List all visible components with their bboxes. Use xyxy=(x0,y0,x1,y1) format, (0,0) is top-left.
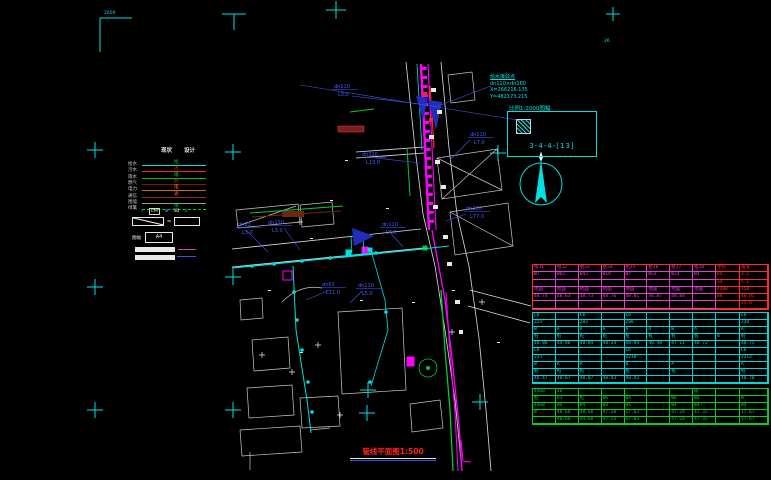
legend-line-swatch xyxy=(142,197,206,198)
legend-line-tag: 通 xyxy=(174,191,179,197)
pipe-size-label: dn63 xyxy=(238,222,251,228)
table-cell: A xyxy=(556,362,579,369)
table-cell xyxy=(740,389,768,396)
legend-slope-row: = xyxy=(132,217,200,226)
pipe-size-label: dn110 xyxy=(382,222,398,228)
table-cell: 地面 xyxy=(602,287,625,294)
table-cell: W4 xyxy=(625,403,648,410)
legend-line-tag: 污 xyxy=(174,165,179,171)
legend-row-label: 污水 xyxy=(128,167,137,173)
legend-row-label: 通信 xyxy=(128,193,137,199)
table-cell: A xyxy=(602,327,625,334)
drawing-title-block: 管线平面图1:500 xyxy=(350,446,436,461)
table-cell xyxy=(602,355,625,362)
table-cell xyxy=(647,410,670,417)
table-cell: W4 xyxy=(693,272,716,279)
table-cell: 桩 xyxy=(556,369,579,376)
table-cell: 48.48 xyxy=(647,341,670,348)
legend-line-tag: 雨 xyxy=(174,172,179,178)
table-cell: 48.07 xyxy=(579,376,602,383)
table-cell: 47.11 xyxy=(670,341,693,348)
pipeline-data-table: 给J1给J2给J3给J4给J5给J6给J7给J8坐标角度W7W65W42W19W… xyxy=(532,264,769,427)
table-cell: 坐标 xyxy=(716,265,740,272)
table-cell: Lb xyxy=(740,313,768,320)
table-cell: W4 xyxy=(556,403,579,410)
table-cell xyxy=(716,396,740,403)
scale-label: 图幅 xyxy=(132,235,141,241)
table-cell xyxy=(647,389,670,396)
road-lines xyxy=(232,62,531,471)
table-cell: Lb xyxy=(625,348,648,355)
table-cell: 48.05 xyxy=(740,294,768,301)
legend-bar-1 xyxy=(135,247,175,252)
table-cell xyxy=(647,348,670,355)
table-cell xyxy=(579,301,602,308)
table-cell: 碰 xyxy=(693,389,716,396)
connection-x: X=266216.135 xyxy=(490,87,528,94)
table-cell xyxy=(579,389,602,396)
pipe-size-label: dn110 xyxy=(470,132,486,138)
table-cell: A xyxy=(693,327,716,334)
table-cell xyxy=(647,376,670,383)
table-cell: W4 xyxy=(740,403,768,410)
table-cell: 88 xyxy=(716,294,740,301)
table-cell: A xyxy=(647,327,670,334)
table-cell xyxy=(716,369,740,376)
pipe-size-label: dn110 xyxy=(362,152,378,158)
table-cell: 225 xyxy=(533,320,556,327)
table-cell: 84 xyxy=(716,272,740,279)
legend-bar-2 xyxy=(135,255,175,260)
legend-row-label: 雨水 xyxy=(128,174,137,180)
table-cell: W6 xyxy=(602,396,625,403)
table-cell: 48.81 xyxy=(625,294,648,301)
table-cell: 地面 xyxy=(625,287,648,294)
table-cell: W65 xyxy=(556,272,579,279)
table-cell: W4 xyxy=(625,396,648,403)
table-cell: 48.73 xyxy=(579,294,602,301)
pipe-length-label: L3.0 xyxy=(272,228,283,234)
table-cell: 158 xyxy=(740,287,768,294)
table-cell: 48.74 xyxy=(533,294,556,301)
table-cell: 48.34 xyxy=(602,341,625,348)
table-cell: 给J1 xyxy=(533,265,556,272)
table-cell xyxy=(693,376,716,383)
table-cell: 47.24 xyxy=(670,410,693,417)
table-cell: 桩 xyxy=(625,334,648,341)
table-cell xyxy=(716,403,740,410)
table-cell: 4468 xyxy=(533,403,556,410)
table-cell xyxy=(693,301,716,308)
table-cell: W4 xyxy=(693,396,716,403)
table-cell: 3.1 xyxy=(740,272,768,279)
table-cell: A xyxy=(556,327,579,334)
table-cell: W xyxy=(670,327,693,334)
table-cell: 5.1 xyxy=(740,280,768,287)
table-cell xyxy=(716,410,740,417)
cad-canvas: 2600 26 dn110L3.0dn110L13.0dn63L3.0dn110… xyxy=(0,0,771,480)
table-cell xyxy=(670,301,693,308)
sheet-index-box: 比例1:2000图幅 3-4-4-[13] xyxy=(507,111,597,157)
table-cell xyxy=(693,280,716,287)
table-cell: W xyxy=(625,362,648,369)
leader-lines xyxy=(246,85,530,303)
pipe-red xyxy=(252,86,434,217)
legend-line-tag: 燃 xyxy=(174,178,179,184)
legend-row-label: 围墙 xyxy=(128,199,137,205)
table-cell xyxy=(533,301,556,308)
table-cell: 地面 xyxy=(647,287,670,294)
table-cell xyxy=(647,362,670,369)
table-cell: 桩 xyxy=(533,369,556,376)
table-cell xyxy=(602,348,625,355)
legend-row-label: 电力 xyxy=(128,186,137,192)
table-cell: m xyxy=(716,334,740,341)
table-cell: 17.63 xyxy=(625,410,648,417)
table-cell xyxy=(647,369,670,376)
table-cell: 48.66 xyxy=(556,410,579,417)
table-cell: 给J8 xyxy=(693,265,716,272)
table-cell: 225 xyxy=(533,355,556,362)
table-cell: A xyxy=(579,327,602,334)
table-cell: Lb xyxy=(740,348,768,355)
table-cell xyxy=(647,280,670,287)
table-cell xyxy=(556,280,579,287)
table-cell: 48.68 xyxy=(579,410,602,417)
table-cell: 44.68 xyxy=(579,417,602,424)
table-cell xyxy=(602,369,625,376)
table-cell xyxy=(602,389,625,396)
table-cell xyxy=(579,280,602,287)
table-cell: 17.63 xyxy=(625,417,648,424)
connection-note: 给水接驳点 dn110×dn160 X=266216.135 Y=482173.… xyxy=(490,74,528,100)
table-cell xyxy=(625,280,648,287)
legend-row-label: 燃气 xyxy=(128,180,137,186)
table-cell xyxy=(556,313,579,320)
table-cell xyxy=(556,348,579,355)
table-cell: 47.38 xyxy=(602,410,625,417)
table-cell: A xyxy=(625,327,648,334)
table-cell: 桩 xyxy=(647,334,670,341)
table-cell xyxy=(670,313,693,320)
table-cell: 48 xyxy=(556,389,579,396)
table-cell xyxy=(716,301,740,308)
table-cell xyxy=(693,294,716,301)
table-cell: W4 xyxy=(579,403,602,410)
table-cell xyxy=(647,301,670,308)
table-cell xyxy=(647,320,670,327)
table-cell xyxy=(625,301,648,308)
table-cell xyxy=(693,313,716,320)
table-cell xyxy=(716,320,740,327)
legend-line-blue xyxy=(177,256,196,257)
table-cell: 48.84 xyxy=(670,294,693,301)
table-cell: 283 xyxy=(579,320,602,327)
legend-line-magenta xyxy=(178,249,196,250)
table-cell: A xyxy=(579,362,602,369)
table-cell: 地面 xyxy=(579,287,602,294)
pipe-length-label: L7.0 xyxy=(474,140,485,146)
table-cell: 地面 xyxy=(556,287,579,294)
table-cell xyxy=(716,376,740,383)
table-cell: W4 xyxy=(670,403,693,410)
table-cell: Lb xyxy=(579,313,602,320)
table-cell: W4 xyxy=(602,403,625,410)
table-cell: W19 xyxy=(602,272,625,279)
legend-symbol: ≈ xyxy=(140,209,144,214)
table-cell xyxy=(716,355,740,362)
table-cell: 48.63 xyxy=(556,294,579,301)
table-cell: 48.78 xyxy=(740,376,768,383)
table-cell xyxy=(716,348,740,355)
table-cell xyxy=(670,348,693,355)
pipe-length-label: L11.0 xyxy=(326,290,340,296)
table-cell: W xyxy=(740,396,768,403)
table-cell xyxy=(579,348,602,355)
legend-header-2: 设计 xyxy=(184,146,195,154)
table-cell xyxy=(670,389,693,396)
table-cell: 15.8 xyxy=(740,301,768,308)
table-cell: Lb xyxy=(533,348,556,355)
corner-text-tl: 2600 xyxy=(104,10,116,16)
table-cell: 地面 xyxy=(533,287,556,294)
table-cell: 17.67 xyxy=(740,410,768,417)
table-cell: 给J4 xyxy=(602,265,625,272)
table-cell xyxy=(556,355,579,362)
table-cell: 34 xyxy=(716,280,740,287)
table-cell xyxy=(716,389,740,396)
table-cell: 桩 xyxy=(556,334,579,341)
hatch-swatch-icon xyxy=(516,119,531,134)
pipe-size-label: dn110 xyxy=(358,283,374,289)
table-cell: 给J5 xyxy=(625,265,648,272)
pipe-length-label: L13.0 xyxy=(366,160,380,166)
drawing-title: 管线平面图1:500 xyxy=(350,446,436,457)
table-cell: 48.86 xyxy=(533,341,556,348)
table-cell xyxy=(693,362,716,369)
table-cell: 48.43 xyxy=(625,376,648,383)
table-cell xyxy=(647,417,670,424)
table-cell: 17.67 xyxy=(740,417,768,424)
table-cell: 桩 xyxy=(533,396,556,403)
table-cell xyxy=(647,403,670,410)
table-cell xyxy=(533,280,556,287)
sheet-box-caption: 比例1:2000图幅 xyxy=(509,104,550,112)
pipe-green xyxy=(250,109,453,471)
north-arrow-icon xyxy=(520,152,562,205)
table-cell xyxy=(533,417,556,424)
table-cell: W24 xyxy=(670,272,693,279)
pipe-magenta xyxy=(283,64,471,471)
table-cell: 给J7 xyxy=(670,265,693,272)
table-cell: W xyxy=(533,362,556,369)
sheet-code: 3-4-4-[13] xyxy=(508,142,596,150)
table-cell xyxy=(602,280,625,287)
table-cell xyxy=(670,320,693,327)
table-cell xyxy=(670,280,693,287)
legend-row-label: 绿篱 xyxy=(128,205,137,211)
table-cell xyxy=(670,376,693,383)
table-cell: A xyxy=(740,327,768,334)
table-cell: 288 xyxy=(625,320,648,327)
table-cell xyxy=(602,362,625,369)
pipe-length-label: L3.0 xyxy=(242,230,253,236)
table-cell: 46.66 xyxy=(556,417,579,424)
table-cell: 48.76 xyxy=(602,294,625,301)
table-cell: 47.24 xyxy=(670,417,693,424)
table-cell: 48.72 xyxy=(693,341,716,348)
table-cell: 48.43 xyxy=(602,376,625,383)
table-cell: W53 xyxy=(647,272,670,279)
table-cell xyxy=(602,320,625,327)
table-cell xyxy=(579,355,602,362)
table-cell: 47.32 xyxy=(693,417,716,424)
table-cell: 桩 xyxy=(579,369,602,376)
pipe-size-label: dn110 xyxy=(268,220,284,226)
title-underline-blue xyxy=(350,460,436,461)
title-underline-white xyxy=(350,458,436,459)
table-cell: W7 xyxy=(533,272,556,279)
pipe-size-label: dn110 xyxy=(334,84,350,90)
table-cell: W6 xyxy=(670,396,693,403)
legend-line-tag: 给 xyxy=(174,159,179,165)
table-cell: 给J3 xyxy=(579,265,602,272)
table-cell: W47 xyxy=(693,403,716,410)
connection-y: Y=482173.215 xyxy=(490,94,528,101)
table-cell xyxy=(556,320,579,327)
table-cell: A xyxy=(740,362,768,369)
table-section-2: LbLbLbLb225283288220WAAAAAWAA桩桩桩桩桩桩桩桩m桩4… xyxy=(532,312,769,384)
table-cell: Lb xyxy=(533,313,556,320)
legend-symbol: 3B xyxy=(173,209,179,214)
table-cell: 桩 xyxy=(579,396,602,403)
table-cell: Lb xyxy=(625,313,648,320)
table-cell xyxy=(625,389,648,396)
legend-symbol: ∠ xyxy=(184,209,188,214)
slope-eq: = xyxy=(167,219,171,225)
table-cell: 角度 xyxy=(740,265,768,272)
table-cell: 桩 xyxy=(670,334,693,341)
table-cell: 桩 xyxy=(693,334,716,341)
legend-symbol: CM xyxy=(149,208,160,215)
legend-scale-row: 图幅 A4 xyxy=(132,232,173,243)
table-cell: 47.24 xyxy=(602,417,625,424)
table-cell: A xyxy=(670,362,693,369)
table-cell xyxy=(693,355,716,362)
table-cell xyxy=(647,313,670,320)
legend-panel: 现状 设计 给水给污水污雨水雨燃气燃电力电通信通围墙绿篱绿 ≈CM◆3B∠ = … xyxy=(128,146,212,264)
table-cell: W xyxy=(533,327,556,334)
table-section-1: 给J1给J2给J3给J4给J5给J6给J7给J8坐标角度W7W65W42W19W… xyxy=(532,264,769,310)
table-cell: 48.84 xyxy=(579,341,602,348)
table-cell: D3 xyxy=(556,396,579,403)
table-cell xyxy=(693,369,716,376)
table-cell: 桩 xyxy=(602,334,625,341)
table-cell xyxy=(556,301,579,308)
table-cell: 48.47 xyxy=(533,376,556,383)
table-cell: 4488 xyxy=(716,287,740,294)
table-cell xyxy=(716,327,740,334)
slope-symbol-icon xyxy=(132,217,164,226)
table-cell: 44.86 xyxy=(556,341,579,348)
table-cell: 桩 xyxy=(625,369,648,376)
table-cell xyxy=(647,355,670,362)
table-cell: 2210 xyxy=(625,355,648,362)
table-cell: 47.32 xyxy=(693,410,716,417)
table-cell xyxy=(602,301,625,308)
slope-box-icon xyxy=(174,217,200,226)
table-cell: W42 xyxy=(579,272,602,279)
corner-text-tr: 26 xyxy=(604,38,610,44)
table-cell: W xyxy=(533,410,556,417)
table-cell xyxy=(716,313,740,320)
pipe-length-label: L4.0 xyxy=(386,230,397,236)
table-cell: 44.87 xyxy=(647,294,670,301)
table-cell xyxy=(602,313,625,320)
table-cell: 桩 xyxy=(579,334,602,341)
table-cell xyxy=(716,417,740,424)
legend-row-label: 给水 xyxy=(128,161,137,167)
table-section-3: 446848碰桩D3桩W6W4W6W4W4468W4W4W4W4W4W47W4W… xyxy=(532,388,769,425)
legend-header-1: 现状 xyxy=(161,146,172,154)
pipe-length-label: L5.0 xyxy=(362,291,373,297)
scale-value-box: A4 xyxy=(145,232,173,243)
table-cell: 48.94 xyxy=(625,341,648,348)
table-cell: 给J6 xyxy=(647,265,670,272)
table-cell: 2212 xyxy=(740,355,768,362)
table-cell xyxy=(647,396,670,403)
table-cell xyxy=(693,348,716,355)
pipe-length-label: L3.0 xyxy=(338,92,349,98)
table-cell xyxy=(716,362,740,369)
table-cell: 桩 xyxy=(740,369,768,376)
table-cell: 4468 xyxy=(533,389,556,396)
table-cell: 桩 xyxy=(740,334,768,341)
table-cell: W7 xyxy=(625,272,648,279)
table-cell xyxy=(716,341,740,348)
table-cell: 地面 xyxy=(670,287,693,294)
legend-symbol: ◆ xyxy=(165,209,168,214)
table-cell xyxy=(693,320,716,327)
table-cell: 给J2 xyxy=(556,265,579,272)
table-cell: 48.75 xyxy=(740,341,768,348)
table-cell: 地面 xyxy=(693,287,716,294)
table-cell xyxy=(670,355,693,362)
table-cell: 桩 xyxy=(533,334,556,341)
table-cell: 48.67 xyxy=(556,376,579,383)
table-cell: 220 xyxy=(740,320,768,327)
legend-symbol-row: ≈CM◆3B∠ xyxy=(140,208,188,215)
pipe-size-label: dn63 xyxy=(322,282,335,288)
pipe-size-label: dn110 xyxy=(466,206,482,212)
legend-line-tag: 电 xyxy=(174,184,179,190)
table-cell: 桩 xyxy=(670,369,693,376)
pipe-length-label: L77.0 xyxy=(470,214,484,220)
